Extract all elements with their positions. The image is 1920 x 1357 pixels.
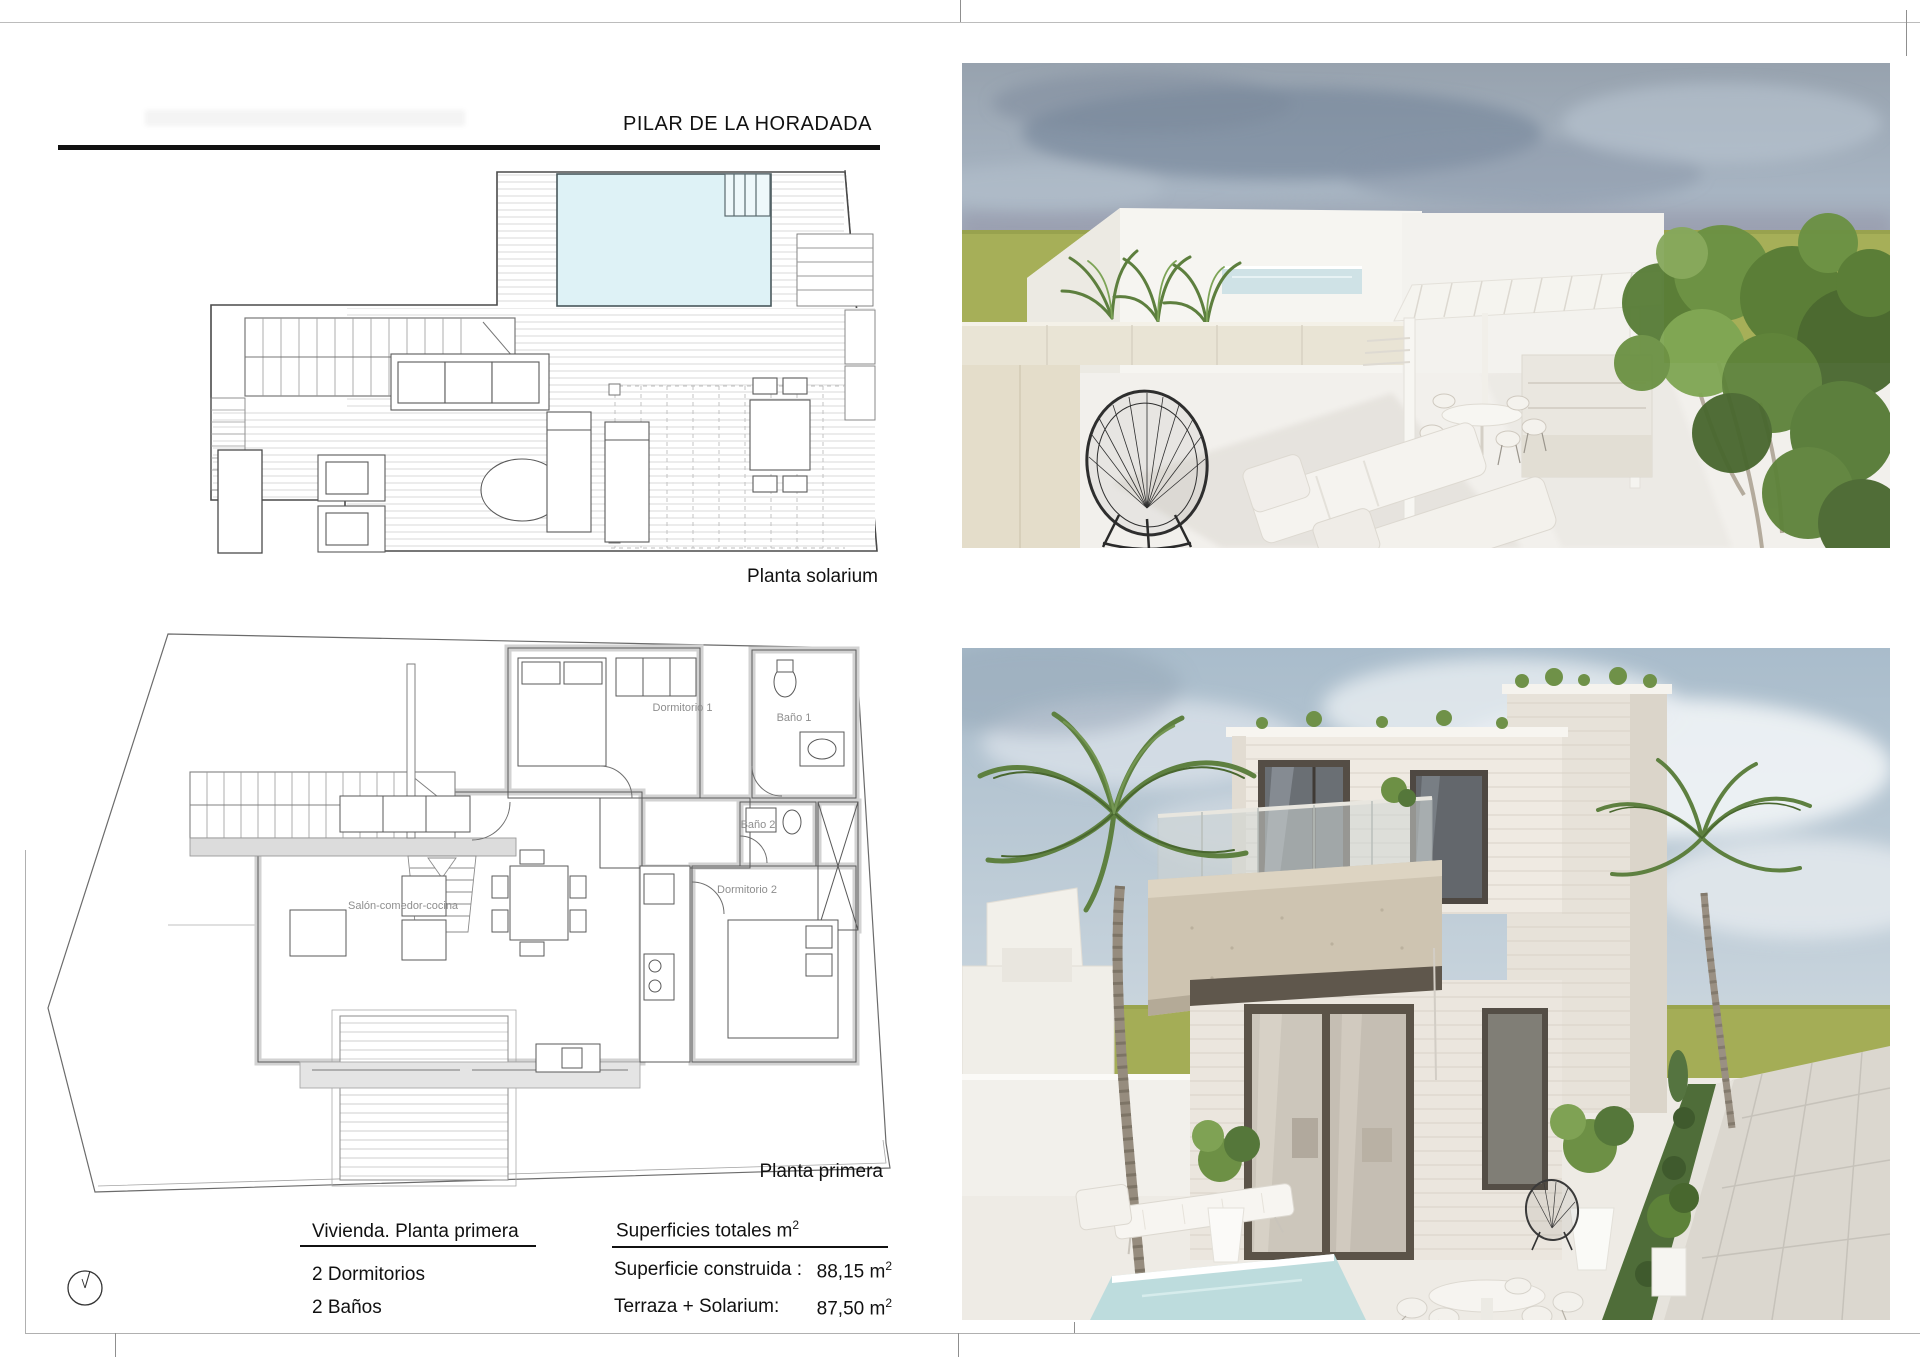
- page-top-right-tick: [1906, 10, 1907, 56]
- room-label-dormitorio2: Dormitorio 2: [703, 884, 791, 896]
- room-label-bano2: Baño 2: [730, 819, 786, 831]
- room-label-salon: Salón-comedor-cocina: [348, 900, 456, 912]
- render-villa-exterior: [962, 648, 1890, 1320]
- north-indicator-icon: [49, 1252, 121, 1324]
- page-title: PILAR DE LA HORADADA: [623, 113, 872, 136]
- room-label-dormitorio1: Dormitorio 1: [640, 702, 725, 714]
- lower-window-right: [1482, 1008, 1548, 1190]
- solarium-floor-plan: [185, 158, 885, 563]
- built-surface-row: Superficie construida : 88,15 m2: [614, 1259, 892, 1283]
- faint-watermark: [145, 110, 465, 126]
- terrace-surface-label: Terraza + Solarium:: [614, 1296, 779, 1320]
- page-top-center-tick: [960, 0, 961, 22]
- pool-ladder-icon: [725, 174, 770, 216]
- plan-sheet: PILAR DE LA HORADADA: [0, 0, 1920, 1357]
- room-label-bano1: Baño 1: [768, 712, 820, 724]
- bedrooms-count: 2 Dormitorios: [312, 1264, 425, 1286]
- page-left-border: [25, 850, 26, 1333]
- vivienda-underline: [300, 1245, 536, 1247]
- built-surface-value: 88,15 m2: [817, 1259, 892, 1283]
- plunge-pool: [1222, 266, 1362, 294]
- terrace-surface-row: Terraza + Solarium: 87,50 m2: [614, 1296, 892, 1320]
- glass-doors: [1244, 1004, 1414, 1260]
- kitchen-units: [640, 866, 690, 1062]
- page-bottom-tick-center: [958, 1333, 959, 1357]
- terrace-surface-value: 87,50 m2: [817, 1296, 892, 1320]
- first-floor-plan: [40, 614, 900, 1194]
- built-surface-label: Superficie construida :: [614, 1259, 802, 1283]
- page-top-border: [0, 22, 1920, 23]
- page-bottom-tick-up: [1074, 1322, 1075, 1333]
- surfaces-heading: Superficies totales m2: [616, 1218, 799, 1242]
- pool-side-stairs: [797, 234, 873, 306]
- vivienda-heading: Vivienda. Planta primera: [312, 1221, 519, 1243]
- terrace-hatched: [332, 1010, 516, 1186]
- page-bottom-border: [25, 1333, 1920, 1334]
- solarium-plan-label: Planta solarium: [700, 566, 878, 588]
- baths-count: 2 Baños: [312, 1297, 382, 1319]
- page-bottom-tick-left: [115, 1333, 116, 1357]
- render-roof-terrace: [962, 63, 1890, 548]
- first-floor-plan-label: Planta primera: [698, 1161, 883, 1183]
- room-bano1: [752, 650, 856, 798]
- surfaces-underline: [612, 1246, 888, 1248]
- title-underline: [58, 145, 880, 150]
